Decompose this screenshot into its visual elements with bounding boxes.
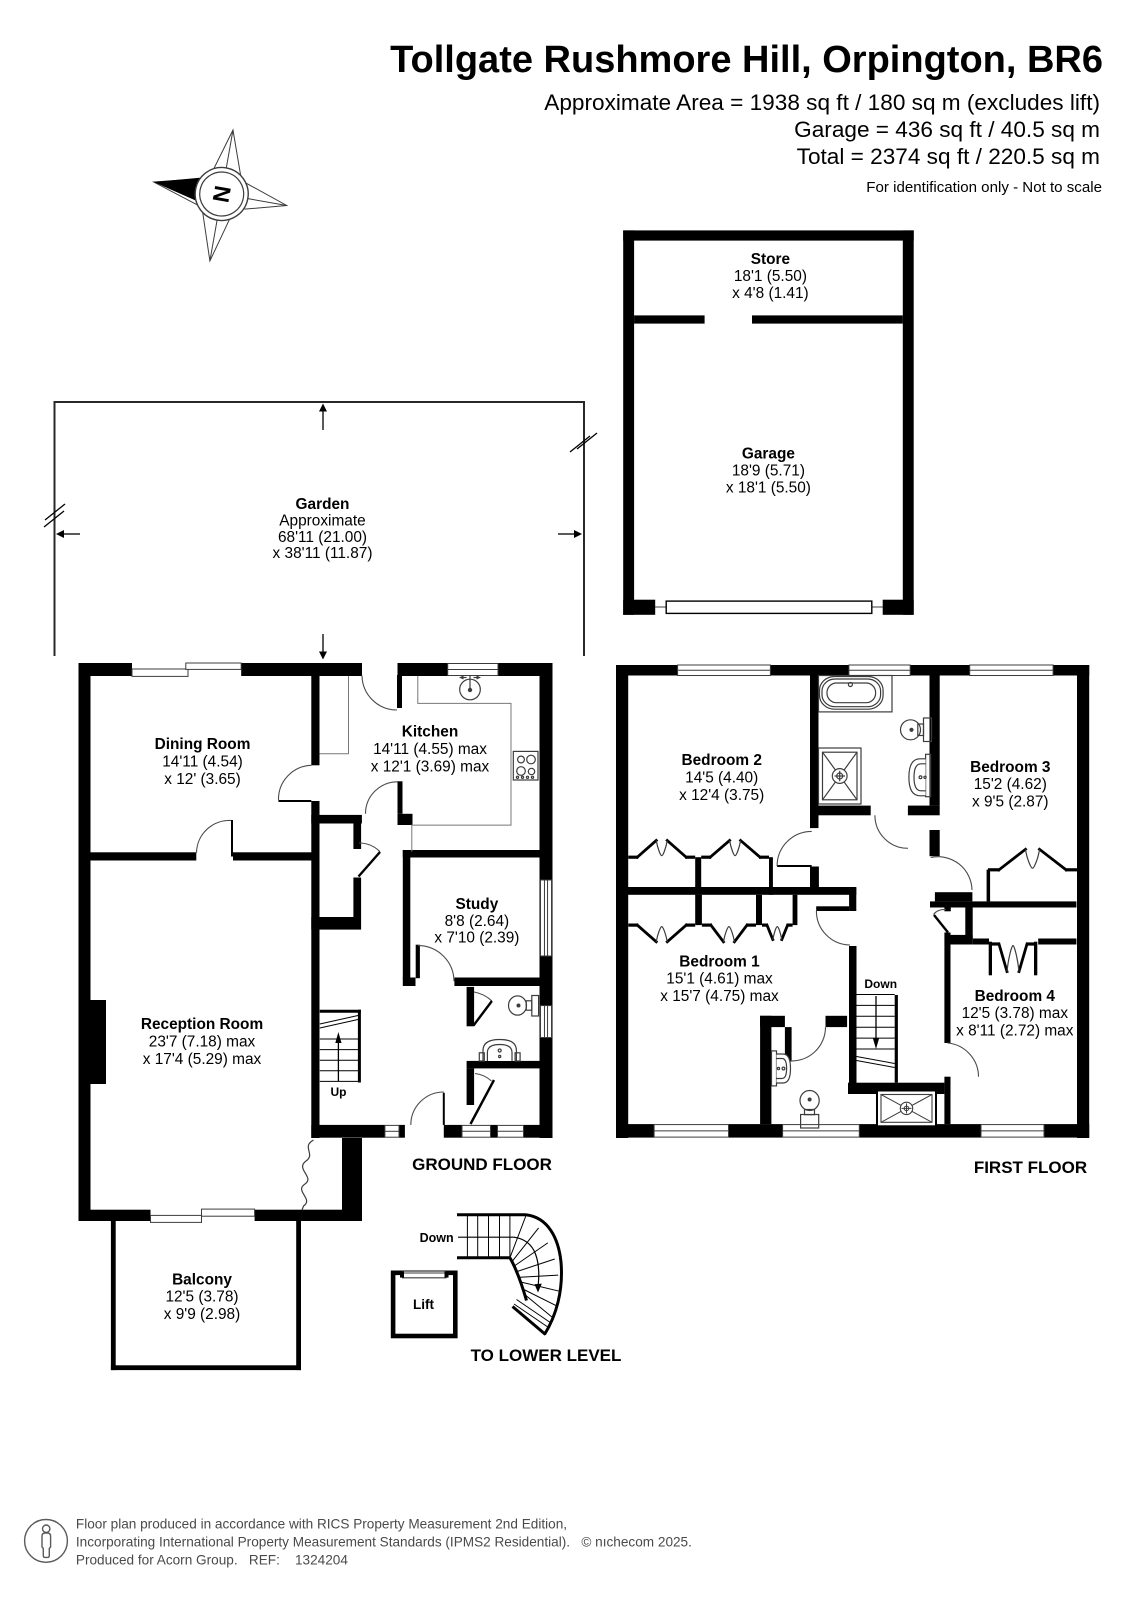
svg-text:TO LOWER LEVEL: TO LOWER LEVEL bbox=[471, 1346, 622, 1365]
svg-text:18'9 (5.71): 18'9 (5.71) bbox=[732, 463, 805, 480]
svg-text:x 9'5 (2.87): x 9'5 (2.87) bbox=[972, 794, 1049, 811]
svg-text:Store: Store bbox=[751, 251, 791, 268]
svg-text:23'7 (7.18) max: 23'7 (7.18) max bbox=[149, 1034, 256, 1051]
svg-text:12'5 (3.78) max: 12'5 (3.78) max bbox=[962, 1005, 1069, 1022]
svg-text:Produced for Acorn Group. RE: Produced for Acorn Group. REF: 1324204 bbox=[76, 1552, 348, 1567]
svg-text:x 15'7 (4.75) max: x 15'7 (4.75) max bbox=[660, 988, 779, 1005]
svg-text:Approximate: Approximate bbox=[279, 512, 365, 529]
svg-text:8'8 (2.64): 8'8 (2.64) bbox=[445, 913, 510, 930]
svg-text:Garden: Garden bbox=[296, 496, 350, 513]
svg-text:14'11 (4.55) max: 14'11 (4.55) max bbox=[373, 741, 487, 758]
svg-text:14'11 (4.54): 14'11 (4.54) bbox=[162, 754, 243, 771]
svg-text:Dining Room: Dining Room bbox=[155, 736, 251, 753]
svg-text:x 12' (3.65): x 12' (3.65) bbox=[164, 771, 241, 788]
svg-text:Down: Down bbox=[420, 1231, 454, 1245]
svg-text:x 8'11 (2.72) max: x 8'11 (2.72) max bbox=[956, 1022, 1074, 1039]
svg-text:x 18'1 (5.50): x 18'1 (5.50) bbox=[726, 480, 811, 497]
svg-text:Reception Room: Reception Room bbox=[141, 1016, 263, 1033]
svg-text:Total = 2374 sq ft / 220.5 sq: Total = 2374 sq ft / 220.5 sq m bbox=[797, 144, 1100, 169]
svg-text:14'5 (4.40): 14'5 (4.40) bbox=[685, 770, 758, 787]
svg-text:Balcony: Balcony bbox=[172, 1272, 232, 1289]
svg-text:Approximate Area = 1938 sq ft: Approximate Area = 1938 sq ft / 180 sq m… bbox=[544, 90, 1100, 115]
svg-text:x 4'8 (1.41): x 4'8 (1.41) bbox=[732, 285, 809, 302]
svg-text:Down: Down bbox=[864, 977, 897, 991]
svg-text:x 7'10 (2.39): x 7'10 (2.39) bbox=[434, 930, 519, 947]
svg-text:x 38'11 (11.87): x 38'11 (11.87) bbox=[273, 545, 373, 562]
svg-text:Bedroom 1: Bedroom 1 bbox=[679, 953, 760, 970]
svg-text:Floor plan produced in accorda: Floor plan produced in accordance with R… bbox=[76, 1516, 567, 1531]
svg-text:x 12'1 (3.69) max: x 12'1 (3.69) max bbox=[371, 759, 490, 776]
svg-text:15'2 (4.62): 15'2 (4.62) bbox=[974, 776, 1047, 793]
svg-text:For identification only - Not: For identification only - Not to scale bbox=[866, 179, 1102, 196]
svg-text:18'1 (5.50): 18'1 (5.50) bbox=[734, 268, 807, 285]
svg-text:x 17'4 (5.29) max: x 17'4 (5.29) max bbox=[143, 1051, 262, 1068]
svg-text:Up: Up bbox=[331, 1085, 347, 1099]
svg-text:Incorporating International Pr: Incorporating International Property Mea… bbox=[76, 1534, 692, 1549]
svg-text:Bedroom 2: Bedroom 2 bbox=[682, 752, 762, 769]
svg-text:Garage: Garage bbox=[742, 446, 795, 463]
svg-text:GROUND FLOOR: GROUND FLOOR bbox=[412, 1155, 552, 1174]
svg-text:Lift: Lift bbox=[413, 1297, 434, 1312]
svg-text:Bedroom 4: Bedroom 4 bbox=[975, 988, 1056, 1005]
svg-text:x 12'4 (3.75): x 12'4 (3.75) bbox=[679, 787, 764, 804]
svg-text:x 9'9 (2.98): x 9'9 (2.98) bbox=[164, 1306, 241, 1323]
svg-text:Study: Study bbox=[456, 896, 499, 913]
svg-text:Bedroom 3: Bedroom 3 bbox=[970, 759, 1050, 776]
svg-text:68'11 (21.00): 68'11 (21.00) bbox=[278, 529, 367, 546]
svg-text:FIRST FLOOR: FIRST FLOOR bbox=[974, 1158, 1087, 1177]
svg-text:12'5 (3.78): 12'5 (3.78) bbox=[165, 1289, 238, 1306]
svg-text:Tollgate Rushmore Hill, Orping: Tollgate Rushmore Hill, Orpington, BR6 bbox=[390, 39, 1103, 81]
svg-text:Garage = 436 sq ft / 40.5 sq m: Garage = 436 sq ft / 40.5 sq m bbox=[794, 117, 1100, 142]
svg-text:Kitchen: Kitchen bbox=[402, 723, 458, 740]
svg-text:15'1 (4.61) max: 15'1 (4.61) max bbox=[666, 971, 773, 988]
